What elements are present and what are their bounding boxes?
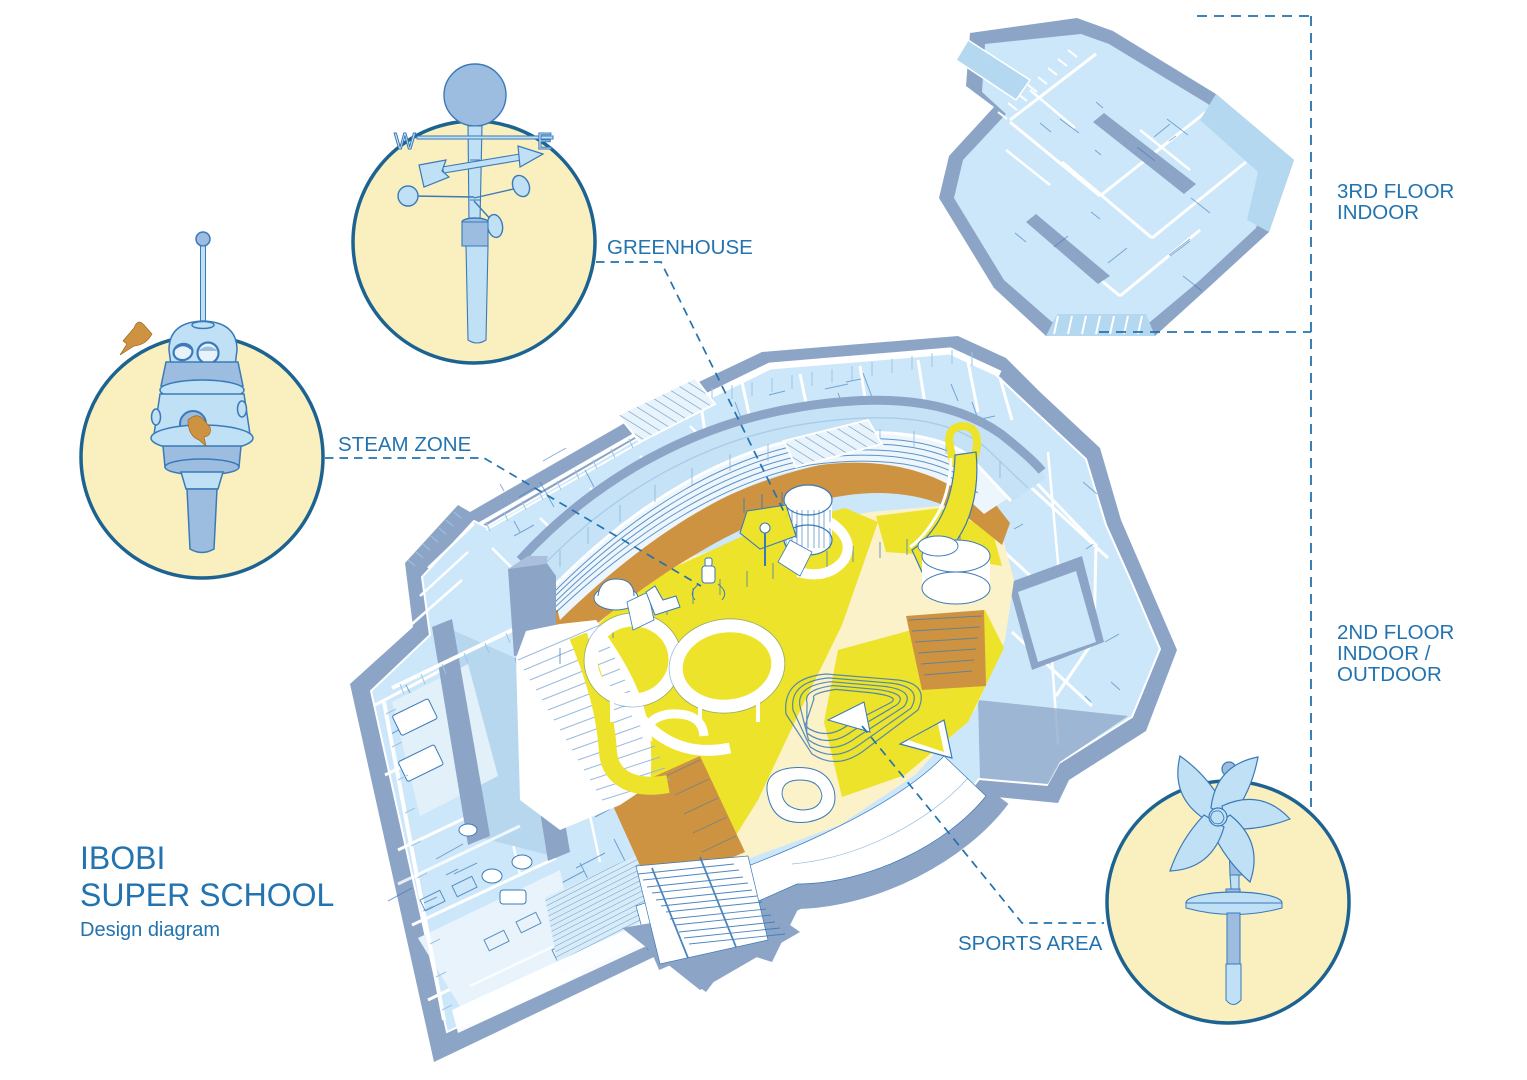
svg-text:GREENHOUSE: GREENHOUSE: [607, 236, 753, 259]
svg-text:SUPER SCHOOL: SUPER SCHOOL: [80, 877, 334, 913]
svg-text:INDOOR: INDOOR: [1337, 201, 1419, 224]
svg-text:W: W: [394, 128, 416, 154]
svg-text:IBOBI: IBOBI: [80, 840, 165, 876]
svg-text:3RD FLOOR: 3RD FLOOR: [1337, 180, 1454, 203]
svg-text:STEAM ZONE: STEAM ZONE: [338, 433, 471, 456]
svg-text:2ND FLOOR: 2ND FLOOR: [1337, 621, 1454, 644]
svg-text:Design diagram: Design diagram: [80, 919, 220, 941]
svg-text:SPORTS AREA: SPORTS AREA: [958, 932, 1103, 955]
svg-text:E: E: [537, 128, 552, 154]
svg-text:INDOOR /: INDOOR /: [1337, 642, 1431, 665]
svg-text:OUTDOOR: OUTDOOR: [1337, 663, 1442, 686]
